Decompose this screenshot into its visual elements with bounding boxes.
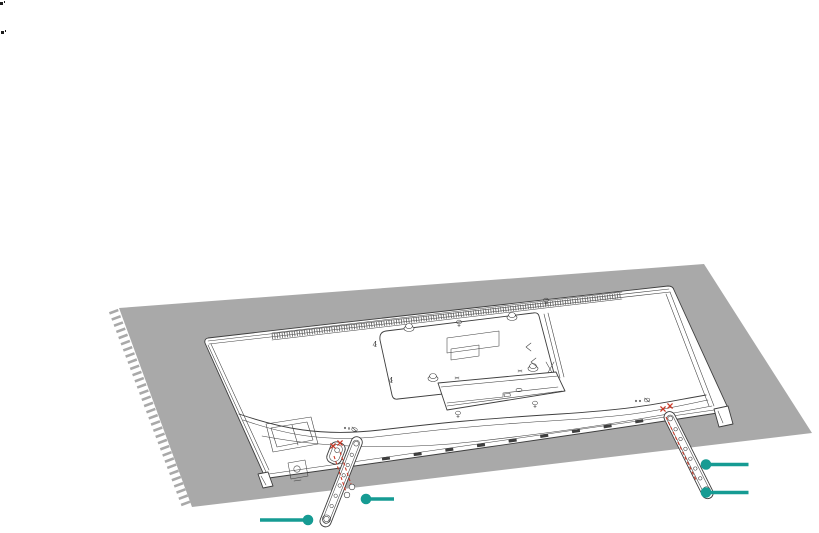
callout-dot-left-lower <box>303 515 314 526</box>
instruction-illustration-page: 4 4 <box>0 0 819 533</box>
left-guide-screw-2 <box>349 484 355 490</box>
left-guide-screw-1 <box>344 492 350 498</box>
callout-dot-left-upper <box>361 494 372 505</box>
callout-dot-right-lower <box>701 487 712 498</box>
callout-dot-right-upper <box>701 459 712 470</box>
tv-stand-assembly-illustration: 4 4 <box>0 0 819 533</box>
